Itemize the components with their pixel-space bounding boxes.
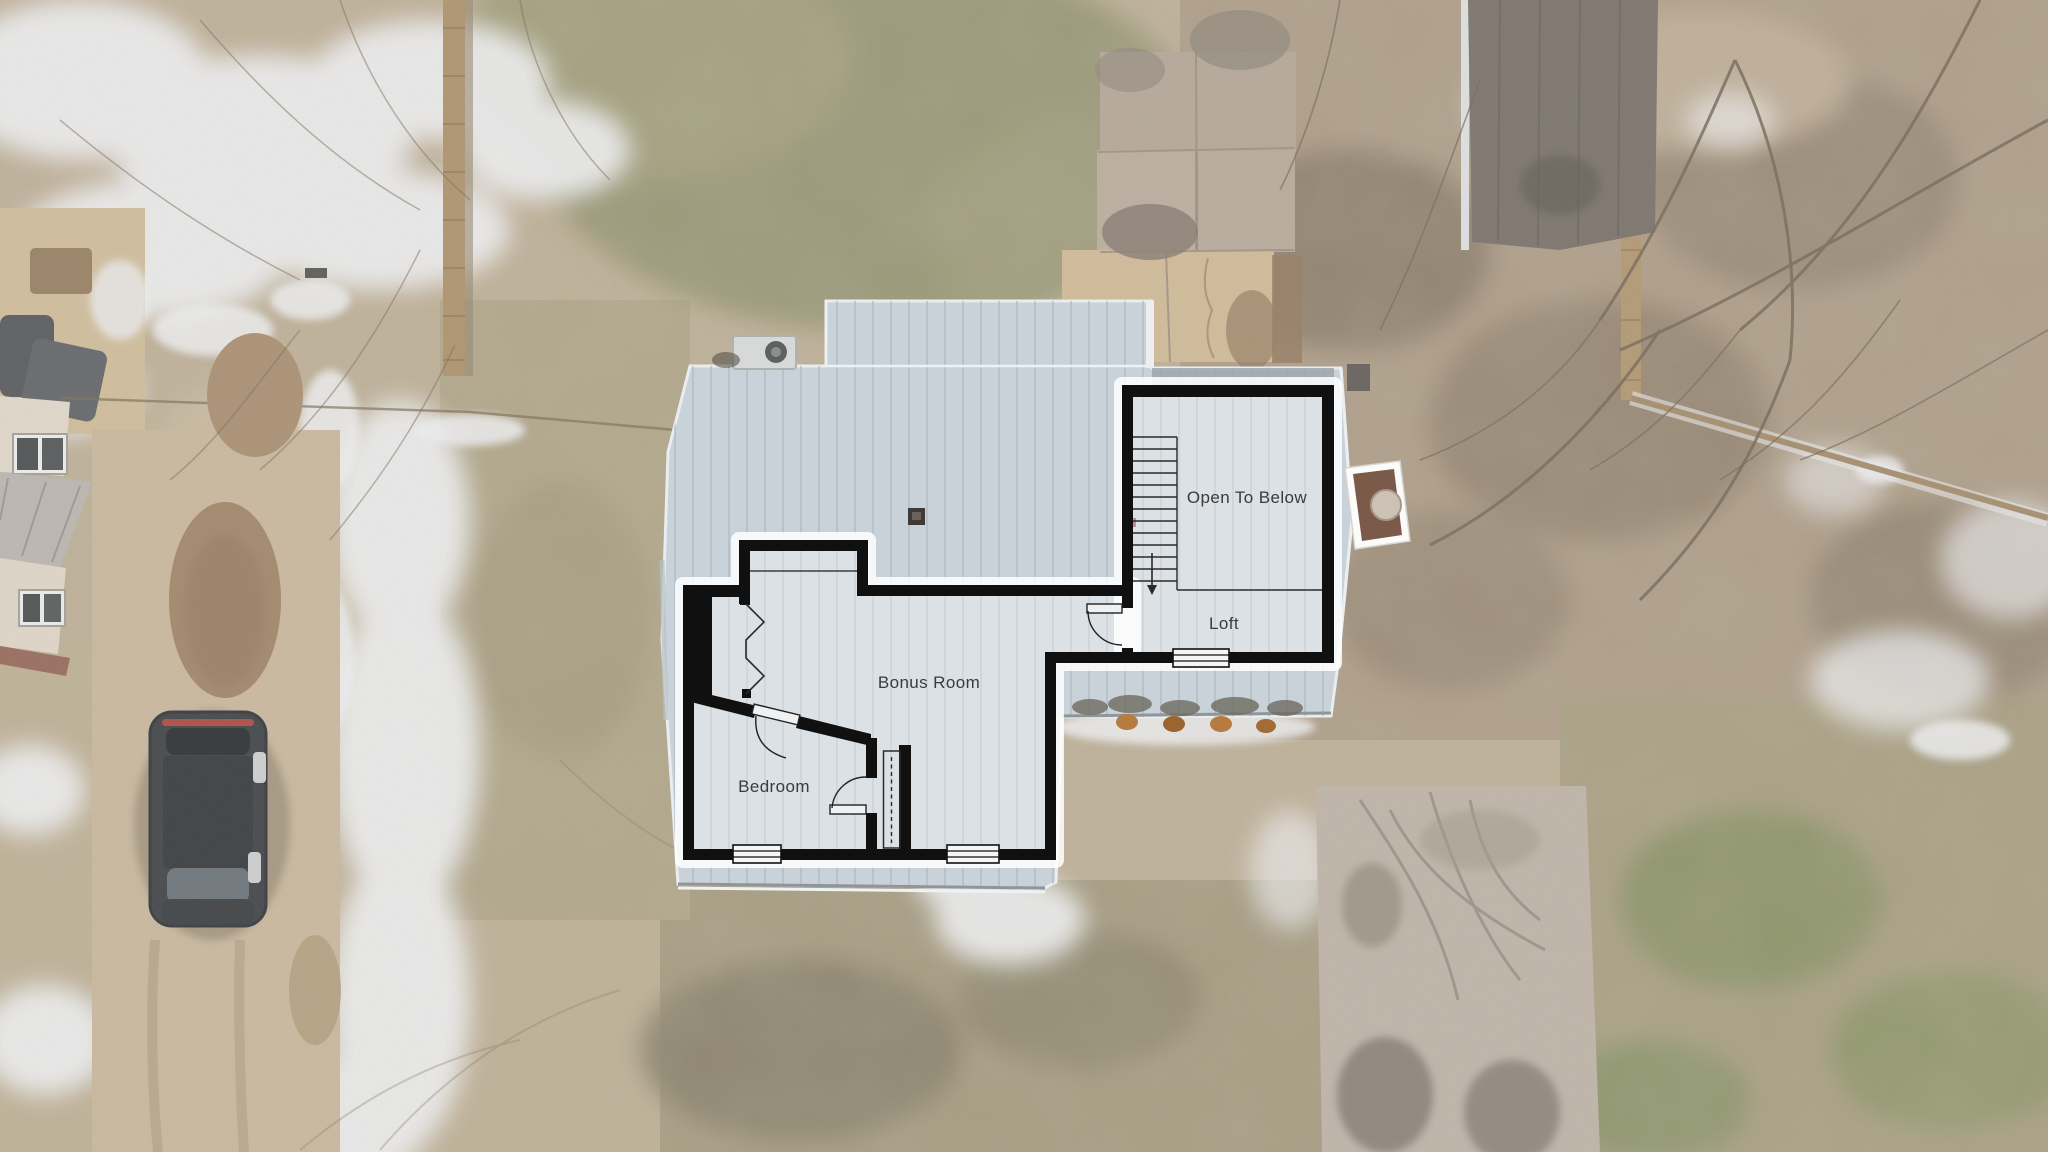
room-label-bonus-room: Bonus Room xyxy=(878,673,980,692)
room-label-bedroom: Bedroom xyxy=(738,777,810,796)
bonus-room-window xyxy=(947,845,999,863)
chimney xyxy=(1345,461,1410,549)
chimney-cap xyxy=(1371,490,1401,520)
loft-window xyxy=(1173,649,1229,667)
aerial-property-photo: Open To Below Loft Bonus Room Bedroom xyxy=(0,0,2048,1152)
roof-vent-inner xyxy=(912,512,921,520)
room-label-open-to-below: Open To Below xyxy=(1187,488,1308,507)
scene-canvas: Open To Below Loft Bonus Room Bedroom xyxy=(0,0,2048,1152)
bedroom-window xyxy=(733,845,781,863)
room-label-loft: Loft xyxy=(1209,614,1239,633)
